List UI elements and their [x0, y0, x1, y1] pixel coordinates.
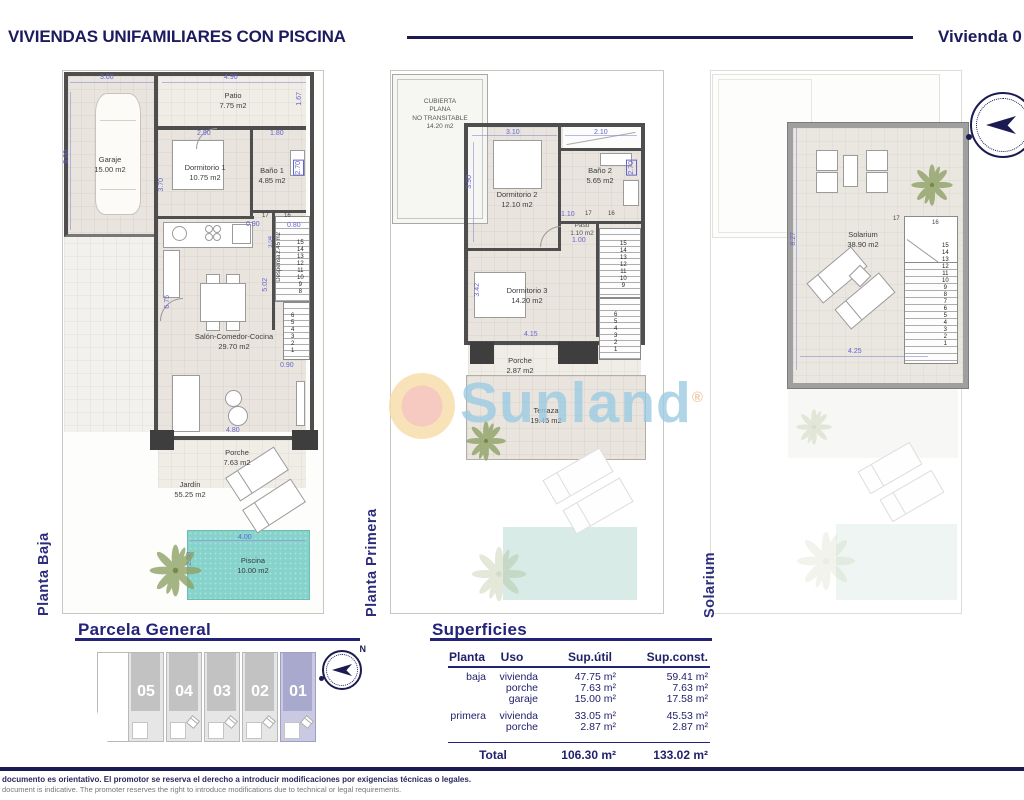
dim-label: 3.00 [100, 74, 114, 81]
room-area: 2.45 m2 [276, 232, 282, 254]
dim-label: 6.75 [164, 295, 171, 309]
compass-dot [966, 134, 972, 140]
room-bano1-label: Baño 1 4.85 m2 [258, 166, 285, 186]
disclaimer-en: document is indicative. The promoter res… [2, 785, 401, 794]
room-name: Garaje [94, 155, 125, 165]
dim-label: 0.80 [287, 222, 301, 229]
room-name: Patio [219, 91, 246, 101]
chair [816, 172, 838, 193]
tv-bench [296, 381, 305, 426]
label-line: NO TRANSITABLE [412, 115, 467, 123]
porch-column [470, 342, 494, 364]
superficies-table: Planta Uso Sup.útil Sup.const. baja vivi… [448, 650, 710, 762]
dim-line [162, 82, 306, 83]
cell-util: 15.00 m² [538, 694, 616, 705]
dim-label: 5.00 [63, 150, 70, 164]
unit-number: 04 [167, 683, 201, 701]
parcela-compass-icon: N [322, 650, 362, 690]
room-area: 5.65 m2 [586, 176, 613, 186]
dim-label: 2.90 [197, 130, 211, 137]
bed [493, 140, 542, 189]
room-name: Dormitorio 3 [507, 286, 548, 296]
stair-numbers: 654321 [614, 312, 617, 354]
label-line: CUBIERTA [412, 98, 467, 106]
chair [816, 150, 838, 171]
room-area: 4.85 m2 [258, 176, 285, 186]
sunland-logo-icon [389, 373, 455, 439]
label-line: 14.20 m2 [412, 123, 467, 131]
col-planta: Planta [448, 650, 486, 664]
total-util: 106.30 m² [538, 748, 616, 762]
cell-const: 2.87 m² [616, 722, 708, 733]
wall-segment [252, 210, 306, 213]
chair [226, 321, 240, 331]
cell-planta: primera [448, 711, 486, 722]
unit-porch [170, 722, 186, 739]
parcela-rule [75, 638, 360, 641]
staircase-lower [283, 302, 310, 360]
stair-landing [904, 216, 958, 264]
sofa [172, 375, 200, 432]
wall-segment [158, 216, 254, 219]
room-area: 10.75 m2 [185, 173, 226, 183]
room-area: 14.20 m2 [507, 296, 548, 306]
dim-label: 4.15 [524, 331, 538, 338]
cell-const: 45.53 m² [616, 711, 708, 722]
room-dormitorio3-label: Dormitorio 3 14.20 m2 [507, 286, 548, 306]
cell-uso: garaje [486, 694, 538, 705]
cell-planta: baja [448, 672, 486, 683]
room-name: Solarium [847, 230, 878, 240]
unit-porch [246, 722, 262, 739]
plan-sheet: VIVIENDAS UNIFAMILIARES CON PISCINA Vivi… [0, 0, 1024, 800]
total-label: Total [448, 748, 538, 762]
floor-label-planta-baja: Planta Baja [36, 528, 52, 616]
dim-label: 1.00 [572, 237, 586, 244]
room-name: Paso [570, 222, 594, 230]
dim-line [800, 356, 928, 357]
dim-label: 2.70 [626, 160, 637, 176]
stair-numbers: 654321 [291, 313, 294, 355]
dim-line [796, 128, 797, 370]
table-row: porche 7.63 m² 7.63 m² [448, 683, 710, 694]
sunland-watermark: Sunland® [460, 370, 704, 436]
stair-count-label: 17 [893, 216, 900, 222]
palm-tree-icon [470, 545, 528, 603]
unit-number: 03 [205, 683, 239, 701]
room-bano2-label: Baño 2 5.65 m2 [586, 166, 613, 186]
room-porche-label: Porche 7.63 m2 [223, 448, 250, 468]
room-solarium-label: Solarium 38.90 m2 [847, 230, 878, 250]
unit-porch [132, 722, 148, 739]
room-area: 15.00 m2 [94, 165, 125, 175]
cell-planta [448, 683, 486, 694]
room-jardin-label: Jardín 55.25 m2 [174, 480, 205, 500]
room-dormitorio2-label: Dormitorio 2 12.10 m2 [497, 190, 538, 210]
col-uso: Uso [486, 650, 538, 664]
room-garaje-label: Garaje 15.00 m2 [94, 155, 125, 175]
table [843, 155, 858, 187]
dim-label: 1.10 [561, 211, 575, 218]
cell-const: 17.58 m² [616, 694, 708, 705]
table-total-line [448, 742, 710, 744]
dim-label: 1.80 [270, 130, 284, 137]
room-name: Porche [506, 356, 533, 366]
page-title: VIVIENDAS UNIFAMILIARES CON PISCINA [8, 27, 346, 47]
cell-util: 7.63 m² [538, 683, 616, 694]
dim-label: 3.10 [506, 129, 520, 136]
total-const: 133.02 m² [616, 748, 708, 762]
toilet [623, 180, 639, 206]
pouf [225, 390, 242, 407]
room-name: Baño 1 [258, 166, 285, 176]
stair-count-label: 16 [608, 211, 615, 217]
kitchen-sink [172, 226, 187, 241]
unit-building [169, 653, 198, 711]
unit-building [131, 653, 160, 711]
porch-column [292, 430, 318, 450]
chair [866, 150, 888, 171]
dim-label: 8.27 [790, 232, 797, 246]
room-patio-label: Patio 7.75 m2 [219, 91, 246, 111]
porch-column [150, 430, 174, 450]
compass-dot [319, 676, 324, 681]
dim-label: 4.90 [224, 74, 238, 81]
plot-unit-02: 02 [242, 652, 278, 742]
cubierta-label: CUBIERTA PLANA NO TRANSITABLE 14.20 m2 [412, 98, 467, 132]
cell-util: 2.87 m² [538, 722, 616, 733]
wall-segment [468, 248, 561, 251]
unit-number: 01 [281, 683, 315, 701]
dim-label: 2.10 [594, 129, 608, 136]
palm-tree-icon [910, 163, 954, 207]
porch-column [558, 342, 598, 364]
dining-table [200, 283, 246, 322]
palm-tree-icon [148, 543, 203, 598]
room-area: 29.70 m2 [195, 342, 273, 352]
staircase [904, 262, 958, 364]
table-row: baja vivienda 47.75 m² 59.41 m² [448, 672, 710, 683]
label-line: PLANA [412, 106, 467, 114]
disclaimer-es: documento es orientativo. El promotor se… [2, 775, 471, 784]
cell-uso: porche [486, 722, 538, 733]
hob-burner [213, 233, 221, 241]
cell-util: 47.75 m² [538, 672, 616, 683]
room-name: Dormitorio 1 [185, 163, 226, 173]
dim-label: 3.90 [466, 175, 473, 189]
stair-count-label: 16 [932, 220, 939, 226]
unit-porch [208, 722, 224, 739]
chair [866, 172, 888, 193]
dim-label: 0.90 [280, 362, 294, 369]
dim-label: 3.04 [268, 236, 274, 248]
header-rule [407, 36, 913, 39]
footer-rule [0, 767, 1024, 771]
dim-label: 0.90 [246, 221, 260, 228]
dim-line [70, 92, 71, 230]
wall-segment [561, 148, 641, 151]
cell-const: 7.63 m² [616, 683, 708, 694]
cell-uso: porche [486, 683, 538, 694]
plot-unit-03: 03 [204, 652, 240, 742]
parcela-title: Parcela General [78, 620, 211, 640]
chair [226, 274, 240, 284]
dim-label: 4.00 [238, 534, 252, 541]
unit-title: Vivienda 0 [938, 27, 1022, 47]
dim-line [473, 142, 474, 242]
cell-planta [448, 694, 486, 705]
chair [206, 274, 220, 284]
plot-unit-04: 04 [166, 652, 202, 742]
lounger-icon [300, 715, 314, 729]
unit-building [283, 653, 312, 711]
hob-burner [205, 225, 213, 233]
lounger-icon [262, 715, 276, 729]
chair [206, 321, 220, 331]
stair-numbers: 15141312111098 [297, 240, 304, 296]
dim-label: 3.70 [158, 178, 165, 192]
table-row: primera vivienda 33.05 m² 45.53 m² [448, 711, 710, 722]
dim-label: 1.67 [296, 92, 303, 106]
plot-unit-01-highlighted: 01 [280, 652, 316, 742]
lounger-icon [224, 715, 238, 729]
cell-planta [448, 722, 486, 733]
hob-burner [213, 225, 221, 233]
room-name: Piscina [237, 556, 268, 566]
unit-number: 05 [129, 683, 163, 701]
floor-label-solarium: Solarium [702, 543, 718, 618]
room-piscina-label: Piscina 10.00 m2 [237, 556, 268, 576]
table-total-row: Total 106.30 m² 133.02 m² [448, 748, 710, 762]
superficies-rule [430, 638, 712, 641]
dim-label: 4.80 [226, 427, 240, 434]
dim-label: 3.42 [474, 283, 481, 297]
pouf [228, 406, 248, 426]
col-sup-util: Sup.útil [538, 650, 616, 664]
dim-line [70, 82, 154, 83]
dim-label: 4.25 [848, 348, 862, 355]
room-despensa-label: Despensa 2.45 m2 [276, 232, 282, 282]
room-area: 7.75 m2 [219, 101, 246, 111]
superficies-title: Superficies [432, 620, 527, 640]
staircase-lower [599, 298, 641, 360]
palm-tree-icon [795, 408, 833, 446]
palm-tree-icon [795, 530, 857, 592]
compass-north-label: N [360, 644, 367, 654]
room-area: 7.63 m2 [223, 458, 250, 468]
driveway [64, 230, 154, 432]
hob-burner [205, 233, 213, 241]
stair-numbers: 151413121110987654321 [942, 243, 949, 348]
unit-porch [284, 722, 300, 739]
room-area: 38.90 m2 [847, 240, 878, 250]
room-salon-label: Salón-Comedor-Cocina 29.70 m2 [195, 332, 273, 352]
dim-label: 5.02 [262, 278, 269, 292]
car-icon [95, 93, 141, 215]
stair-count-label: 17 [585, 211, 592, 217]
room-dormitorio1-label: Dormitorio 1 10.75 m2 [185, 163, 226, 183]
cell-uso: vivienda [486, 672, 538, 683]
north-compass-icon [970, 92, 1024, 158]
room-name: Porche [223, 448, 250, 458]
wall-segment [250, 126, 253, 218]
dim-label: 2.70 [293, 160, 304, 176]
cell-uso: vivienda [486, 711, 538, 722]
kitchen-counter-side [163, 250, 180, 298]
room-name: Jardín [174, 480, 205, 490]
table-row: garaje 15.00 m² 17.58 m² [448, 694, 710, 705]
cell-const: 59.41 m² [616, 672, 708, 683]
room-area: 12.10 m2 [497, 200, 538, 210]
floor-label-planta-primera: Planta Primera [364, 502, 380, 617]
plot-edge [97, 652, 132, 742]
room-name: Despensa [276, 255, 282, 282]
table-row: porche 2.87 m² 2.87 m² [448, 722, 710, 733]
unit-number: 02 [243, 683, 277, 701]
table-header: Planta Uso Sup.útil Sup.const. [448, 650, 710, 664]
cell-util: 33.05 m² [538, 711, 616, 722]
unit-building [207, 653, 236, 711]
col-sup-const: Sup.const. [616, 650, 708, 664]
plot-unit-05: 05 [128, 652, 164, 742]
registered-mark: ® [692, 389, 704, 406]
stair-count-label: 16 [284, 213, 291, 219]
room-area: 55.25 m2 [174, 490, 205, 500]
stair-numbers: 1514131211109 [620, 241, 627, 290]
room-name: Salón-Comedor-Cocina [195, 332, 273, 342]
room-name: Baño 2 [586, 166, 613, 176]
watermark-brand: Sunland [460, 371, 692, 435]
room-area: 10.00 m2 [237, 566, 268, 576]
unit-building [245, 653, 274, 711]
lounger-icon [186, 715, 200, 729]
stair-count-label: 17 [262, 213, 269, 219]
room-name: Dormitorio 2 [497, 190, 538, 200]
